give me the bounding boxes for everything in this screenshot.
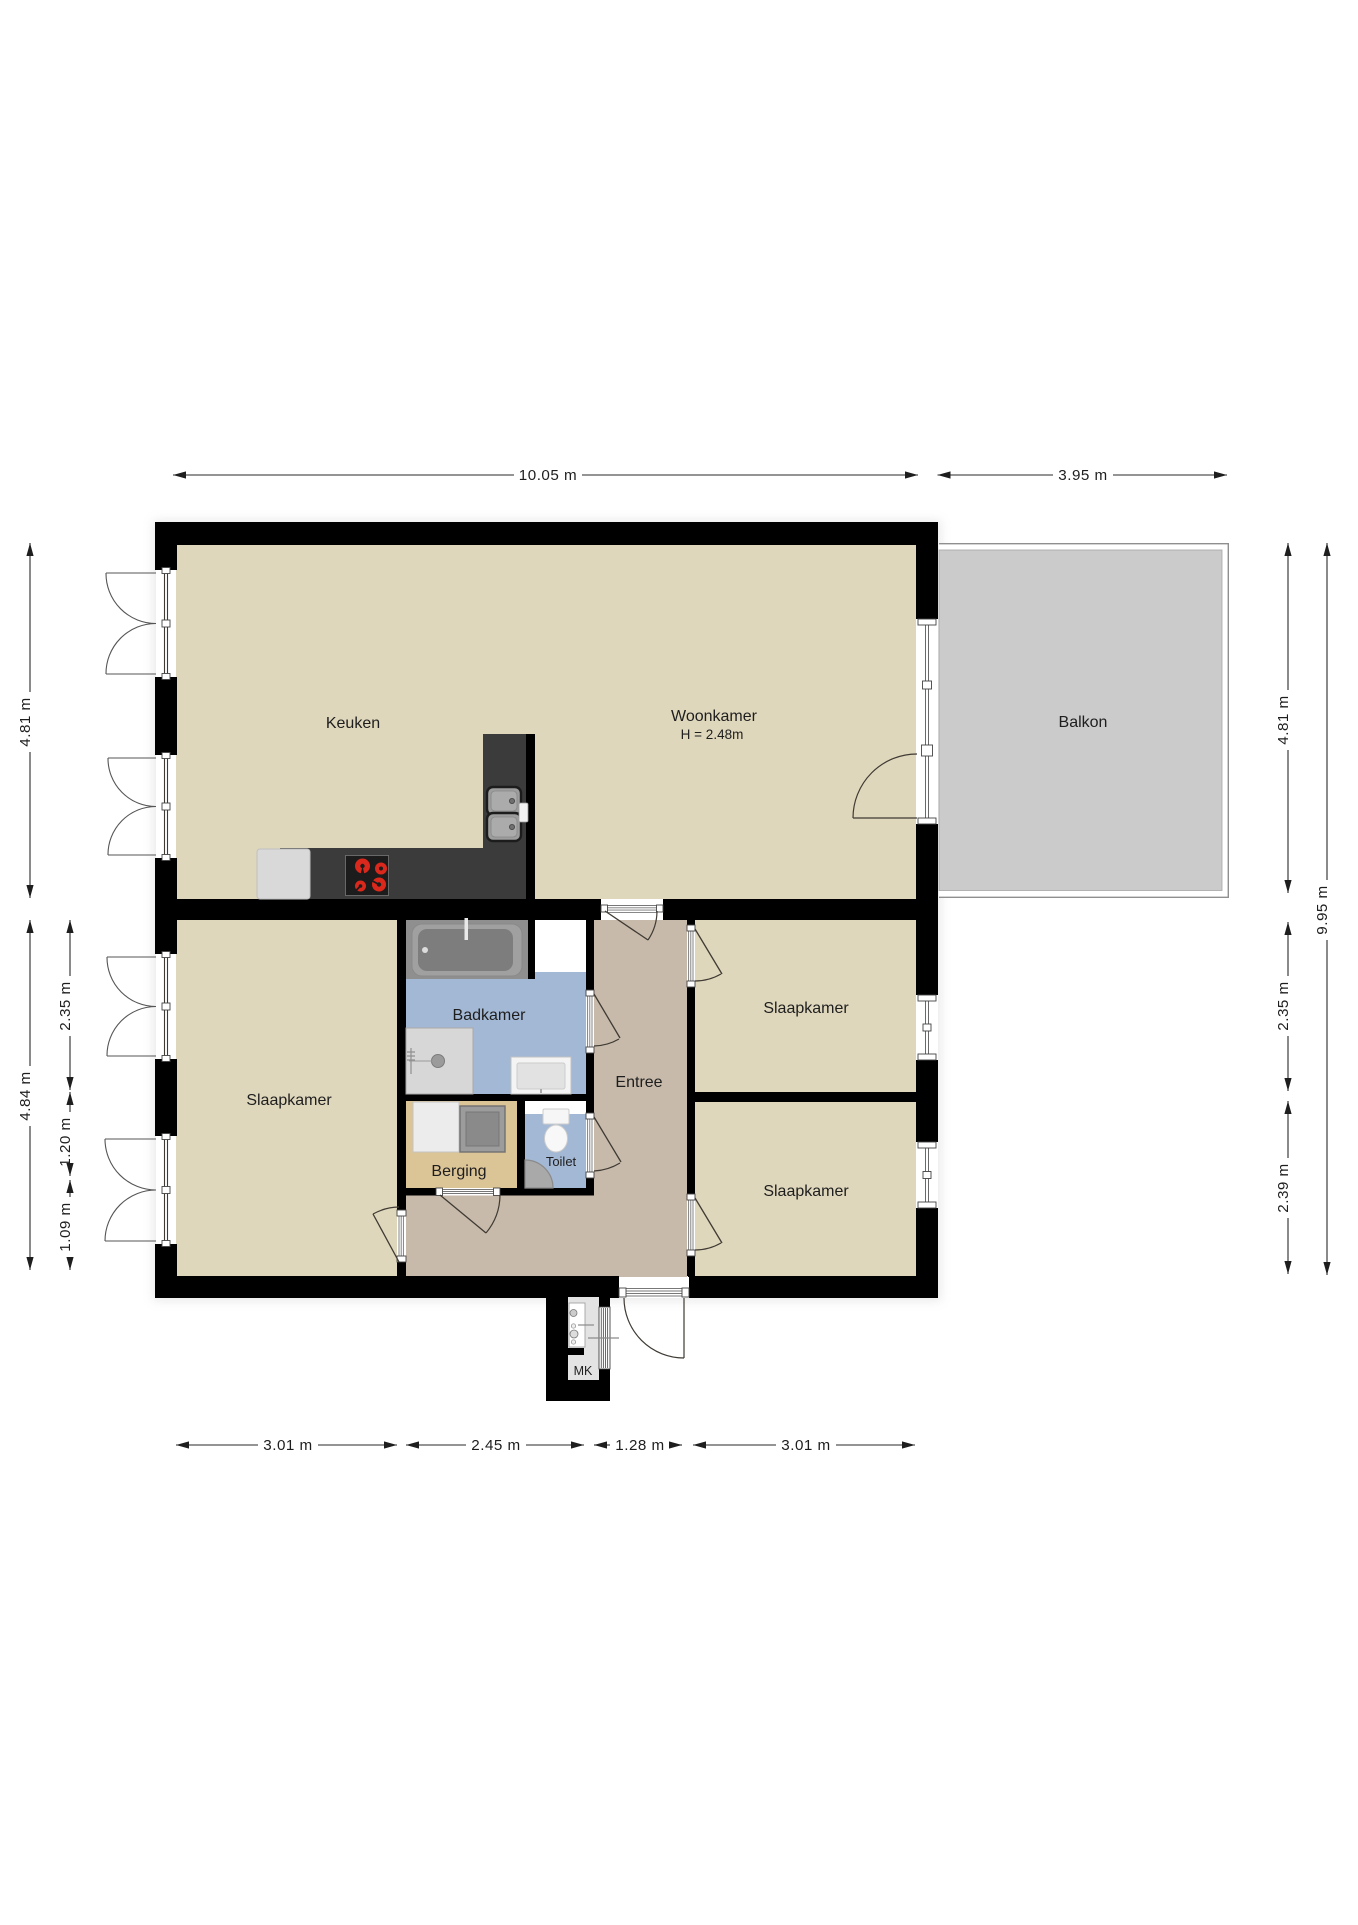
svg-text:4.81 m: 4.81 m	[17, 697, 34, 746]
svg-text:Slaapkamer: Slaapkamer	[246, 1092, 332, 1109]
svg-text:Balkon: Balkon	[1059, 714, 1108, 731]
svg-text:Woonkamer: Woonkamer	[671, 708, 758, 725]
svg-text:1.09 m: 1.09 m	[57, 1202, 74, 1251]
svg-text:2.45 m: 2.45 m	[471, 1437, 520, 1454]
svg-text:1.28 m: 1.28 m	[615, 1437, 664, 1454]
svg-text:1.20 m: 1.20 m	[57, 1117, 74, 1166]
svg-text:10.05 m: 10.05 m	[519, 467, 577, 484]
svg-text:Slaapkamer: Slaapkamer	[763, 1000, 849, 1017]
svg-text:Toilet: Toilet	[546, 1154, 577, 1169]
svg-text:3.95 m: 3.95 m	[1058, 467, 1107, 484]
svg-text:Slaapkamer: Slaapkamer	[763, 1183, 849, 1200]
svg-text:2.35 m: 2.35 m	[57, 981, 74, 1030]
svg-text:Badkamer: Badkamer	[453, 1007, 527, 1024]
svg-text:9.95 m: 9.95 m	[1314, 885, 1331, 934]
svg-text:4.81 m: 4.81 m	[1275, 695, 1292, 744]
svg-text:3.01 m: 3.01 m	[263, 1437, 312, 1454]
svg-text:Berging: Berging	[431, 1163, 486, 1180]
svg-text:MK: MK	[574, 1364, 593, 1378]
svg-text:2.39 m: 2.39 m	[1275, 1163, 1292, 1212]
svg-text:3.01 m: 3.01 m	[781, 1437, 830, 1454]
svg-text:H = 2.48m: H = 2.48m	[681, 727, 744, 742]
svg-text:Entree: Entree	[615, 1074, 662, 1091]
svg-text:Keuken: Keuken	[326, 715, 380, 732]
svg-text:4.84 m: 4.84 m	[17, 1071, 34, 1120]
svg-text:2.35 m: 2.35 m	[1275, 981, 1292, 1030]
